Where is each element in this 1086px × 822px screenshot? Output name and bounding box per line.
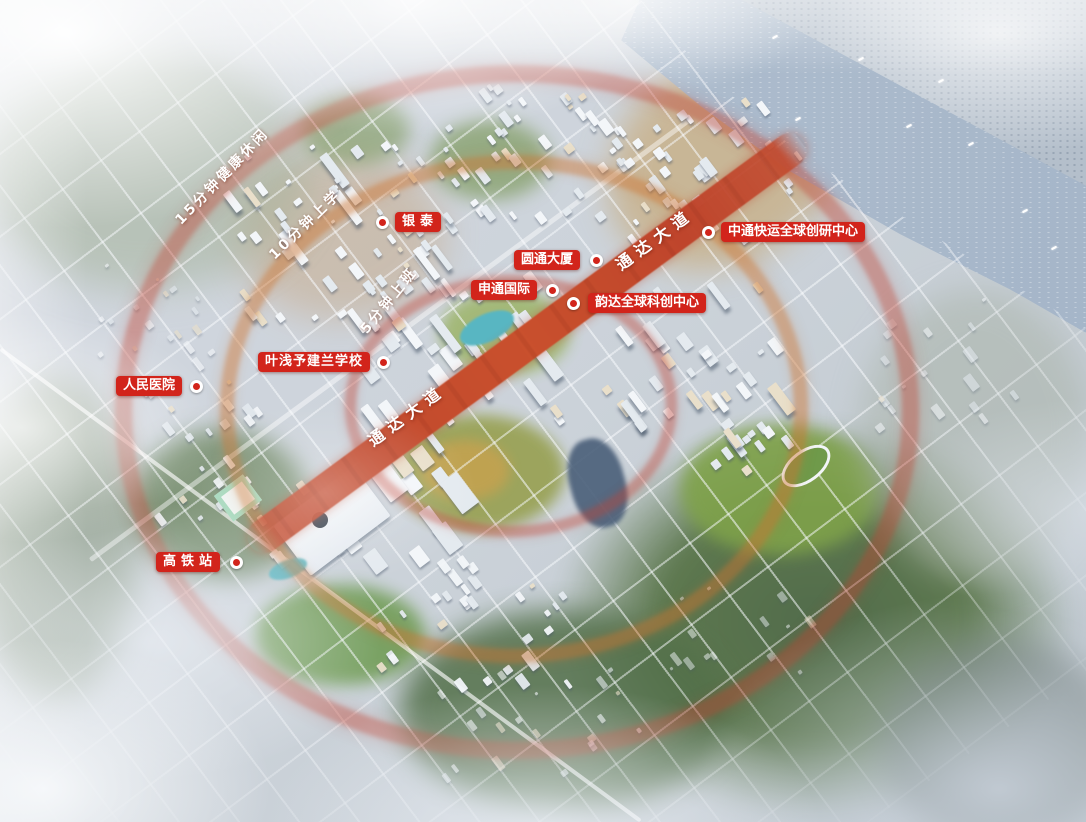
building-block [962,345,978,362]
building-block [1009,390,1020,402]
building-block [968,401,980,413]
building-block [740,97,750,108]
building-block [756,100,771,116]
marker-yunda-global-center-label: 韵达全球科创中心 [588,293,706,313]
marker-yto-building: 圆通大厦 [514,250,603,270]
marker-zto-global-center-label: 中通快运全球创研中心 [721,222,865,242]
marker-zto-global-center: 中通快运全球创研中心 [702,222,865,242]
building-block [923,327,933,338]
building-block [451,764,460,774]
marker-zto-global-center-dot [702,226,715,239]
building-block [963,373,980,392]
building-block [97,350,104,357]
marker-peoples-hospital-dot [190,380,203,393]
marker-hsr-station-dot [230,556,243,569]
building-block [797,669,803,675]
building-block [978,413,989,425]
building-block [104,264,109,269]
masterplan-aerial-map: 通达大道 通达大道 15分钟健康休闲 10分钟上学 5分钟上班 银泰 圆通大厦 … [0,0,1086,822]
marker-yto-building-dot [590,254,603,267]
marker-jianlan-school-label: 叶浅予建兰学校 [258,352,370,372]
building-block [441,773,451,784]
building-block [981,297,986,302]
building-block [930,403,946,420]
marker-sto-international-label: 申通国际 [471,280,537,300]
marker-yto-building-label: 圆通大厦 [514,250,580,270]
building-block [968,322,977,332]
building-block [559,768,568,777]
marker-yintai-label: 银泰 [395,212,441,232]
marker-jianlan-school-dot [377,356,390,369]
marker-yintai-dot [376,216,389,229]
marker-jianlan-school: 叶浅予建兰学校 [258,352,390,372]
building-block [106,317,114,325]
marker-sto-international: 申通国际 [471,280,559,300]
marker-yunda-global-center-dot [567,297,580,310]
building-block [98,316,105,323]
building-block [920,370,928,377]
marker-hsr-station: 高铁站 [156,552,243,572]
marker-yintai: 银泰 [376,212,441,232]
marker-peoples-hospital: 人民医院 [116,376,203,396]
marker-sto-international-dot [546,284,559,297]
marker-peoples-hospital-label: 人民医院 [116,376,182,396]
marker-yunda-global-center: 韵达全球科创中心 [567,293,706,313]
marker-hsr-station-label: 高铁站 [156,552,220,572]
